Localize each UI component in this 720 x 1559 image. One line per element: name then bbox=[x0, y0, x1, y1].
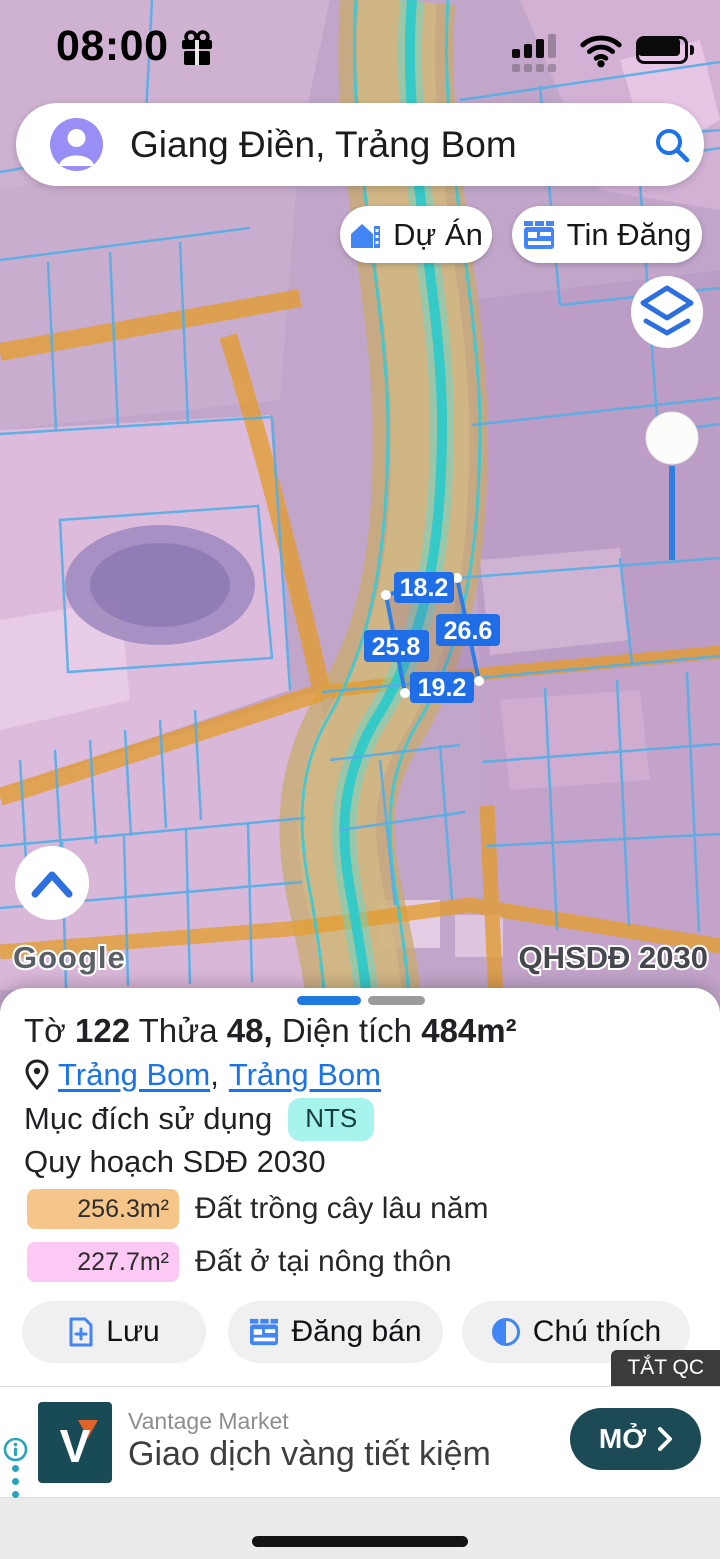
land-usage-label: Mục đích sử dụng bbox=[24, 1101, 272, 1137]
dimension-label: 18.2 bbox=[400, 574, 449, 602]
chevron-right-icon bbox=[658, 1427, 672, 1451]
save-button[interactable]: Lưu bbox=[22, 1301, 206, 1363]
zoom-slider-knob[interactable] bbox=[646, 412, 698, 464]
search-icon[interactable] bbox=[652, 125, 692, 165]
location-link-ward[interactable]: Trảng Bom bbox=[58, 1057, 210, 1093]
ad-info-icon[interactable] bbox=[3, 1437, 28, 1462]
search-bar[interactable]: Giang Điền, Trảng Bom bbox=[16, 103, 704, 186]
location-separator: , bbox=[210, 1057, 219, 1093]
advertiser-logo[interactable]: V bbox=[38, 1402, 112, 1483]
contrast-icon bbox=[491, 1317, 521, 1347]
cellular-signal-icon bbox=[512, 32, 570, 72]
zoning-label: Đất ở tại nông thôn bbox=[195, 1245, 452, 1279]
page-indicator-idle[interactable] bbox=[368, 996, 425, 1005]
dimension-label: 26.6 bbox=[444, 617, 493, 645]
parcel-title: Tờ 122 Thửa 48, Diện tích 484m² bbox=[24, 1012, 517, 1050]
app-screen: 18.2 26.6 25.8 19.2 Google QHSDĐ 2030 bbox=[0, 0, 720, 1559]
avatar[interactable] bbox=[50, 118, 103, 171]
ad-open-button[interactable]: MỞ bbox=[570, 1408, 701, 1470]
search-input[interactable]: Giang Điền, Trảng Bom bbox=[130, 124, 517, 166]
zoning-row-residential: 227.7m² Đất ở tại nông thôn bbox=[27, 1242, 452, 1282]
projects-button-label: Dự Án bbox=[393, 217, 483, 253]
sell-listing-button[interactable]: Đăng bán bbox=[228, 1301, 443, 1363]
plan-row: Quy hoạch SDĐ 2030 bbox=[24, 1144, 326, 1180]
zoning-area-badge: 256.3m² bbox=[27, 1189, 179, 1229]
land-usage-row: Mục đích sử dụng NTS bbox=[24, 1098, 374, 1140]
person-icon bbox=[50, 118, 103, 171]
house-icon bbox=[349, 220, 381, 250]
logo-letter: V bbox=[60, 1420, 91, 1472]
dimension-label: 25.8 bbox=[372, 633, 421, 661]
battery-icon bbox=[636, 36, 696, 64]
newspaper-icon bbox=[249, 1318, 279, 1346]
ad-open-label: MỞ bbox=[599, 1423, 646, 1455]
system-footer bbox=[0, 1498, 720, 1559]
land-usage-badge: NTS bbox=[288, 1098, 374, 1141]
ad-menu-dot[interactable] bbox=[12, 1465, 19, 1472]
dismiss-ad-button[interactable]: TẮT QC bbox=[611, 1350, 720, 1386]
save-document-icon bbox=[68, 1317, 94, 1347]
ad-headline: Giao dịch vàng tiết kiệm bbox=[128, 1435, 491, 1474]
newspaper-icon bbox=[523, 220, 555, 250]
ad-banner[interactable]: V Vantage Market Giao dịch vàng tiết kiệ… bbox=[0, 1386, 720, 1498]
map-layers-button[interactable] bbox=[631, 276, 703, 348]
google-watermark: Google bbox=[13, 940, 126, 975]
ad-menu-dot[interactable] bbox=[12, 1478, 19, 1485]
zoning-area-badge: 227.7m² bbox=[27, 1242, 179, 1282]
projects-button[interactable]: Dự Án bbox=[340, 206, 492, 263]
ad-menu-dot[interactable] bbox=[12, 1491, 19, 1498]
home-indicator[interactable] bbox=[252, 1536, 468, 1547]
sell-button-label: Đăng bán bbox=[291, 1315, 421, 1349]
location-link-district[interactable]: Trảng Bom bbox=[229, 1057, 381, 1093]
map-pin-icon bbox=[24, 1059, 50, 1091]
save-button-label: Lưu bbox=[106, 1315, 159, 1349]
plan-code-label: QHSDĐ 2030 bbox=[518, 940, 708, 975]
zoning-label: Đất trồng cây lâu năm bbox=[195, 1192, 488, 1226]
listings-button[interactable]: Tin Đăng bbox=[512, 206, 702, 263]
clock: 08:00 bbox=[56, 22, 168, 71]
ad-brand-name: Vantage Market bbox=[128, 1408, 289, 1435]
gift-icon bbox=[180, 30, 214, 66]
expand-sheet-button[interactable] bbox=[15, 846, 89, 920]
status-bar: 08:00 bbox=[0, 0, 720, 90]
page-indicator-active[interactable] bbox=[297, 996, 361, 1005]
dimension-label: 19.2 bbox=[418, 674, 467, 702]
wifi-icon bbox=[580, 34, 622, 68]
listings-button-label: Tin Đăng bbox=[567, 217, 692, 253]
parcel-info-sheet: Tờ 122 Thửa 48, Diện tích 484m² Trảng Bo… bbox=[0, 988, 720, 1386]
location-row: Trảng Bom, Trảng Bom bbox=[24, 1056, 381, 1094]
zoning-row-perennial: 256.3m² Đất trồng cây lâu năm bbox=[27, 1189, 488, 1229]
legend-button-label: Chú thích bbox=[533, 1315, 661, 1349]
